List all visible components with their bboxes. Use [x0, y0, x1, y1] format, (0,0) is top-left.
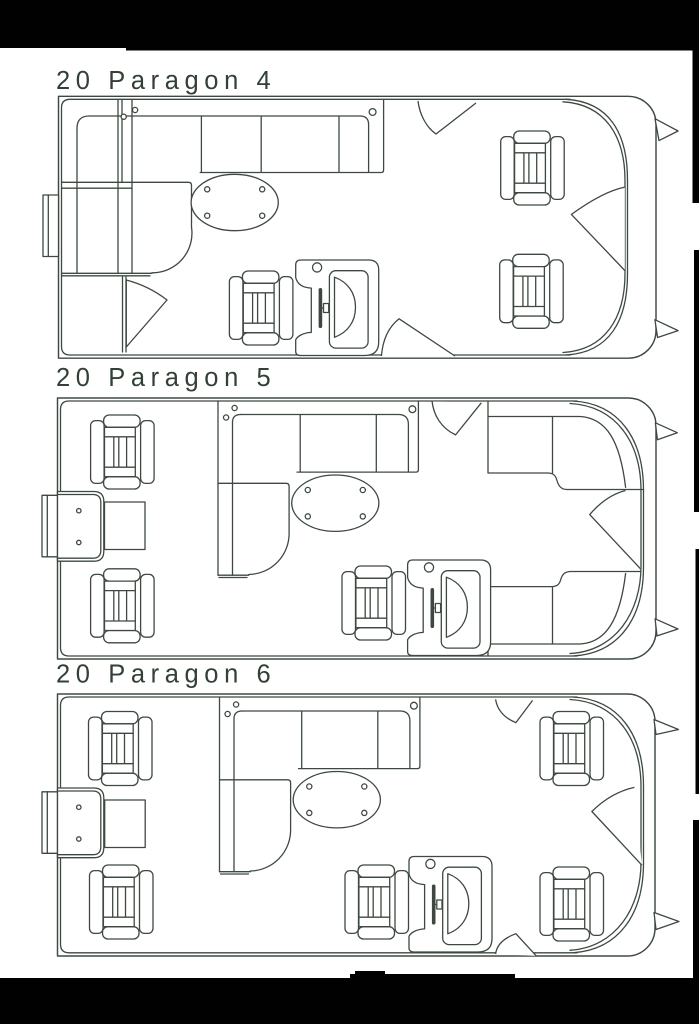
svg-text:20 Paragon 6: 20 Paragon 6: [56, 661, 276, 689]
svg-text:20 Paragon 5: 20 Paragon 5: [56, 364, 276, 392]
svg-text:20 Paragon 4: 20 Paragon 4: [56, 67, 276, 95]
